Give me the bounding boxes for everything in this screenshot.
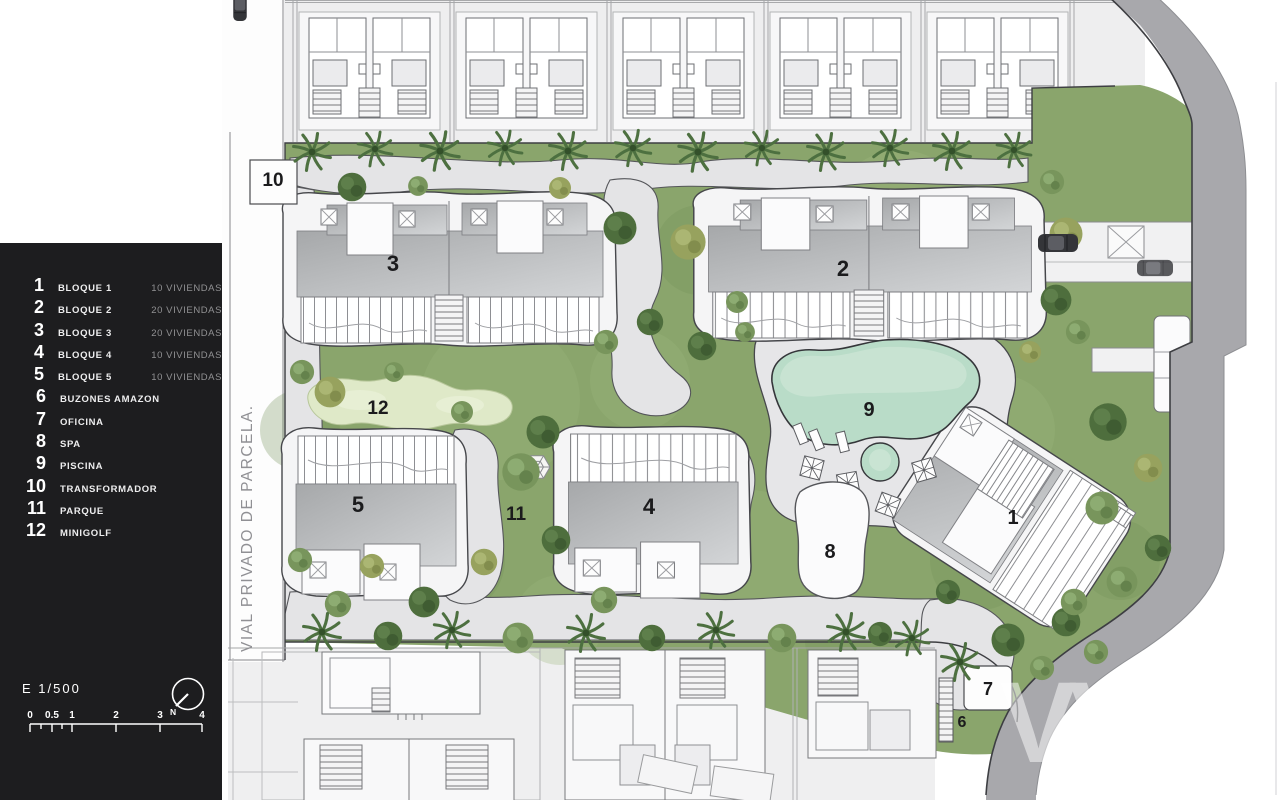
legend-item-spa: 8SPA [0,431,222,453]
plan-label-bloque-2: 2 [837,256,849,281]
legend-label: BLOQUE 5 [58,372,151,383]
plan-label-buzones: 6 [958,714,967,731]
road-label: VIAL PRIVADO DE PARCELA. [239,404,256,652]
legend-item-bloque-4: 4BLOQUE 410 VIVIENDAS [0,342,222,364]
plan-label-bloque-4: 4 [643,494,656,519]
scale-tick-label: 4 [199,710,205,721]
legend-item-minigolf: 12MINIGOLF [0,520,222,542]
legend-list: 1BLOQUE 110 VIVIENDAS 2BLOQUE 220 VIVIEN… [0,243,222,543]
plan-label-spa: 8 [824,541,835,563]
legend-item-bloque-1: 1BLOQUE 110 VIVIENDAS [0,275,222,297]
legend-number: 11 [12,498,46,519]
legend-number: 7 [12,409,46,430]
legend-label: MINIGOLF [60,528,159,539]
buzones-amazon [939,678,953,742]
parasol-icon [800,456,824,480]
legend-panel: 1BLOQUE 110 VIVIENDAS 2BLOQUE 220 VIVIEN… [0,243,222,800]
legend-item-bloque-5: 5BLOQUE 510 VIVIENDAS [0,364,222,386]
legend-detail: 10 VIVIENDAS [151,283,222,294]
scale-label: E 1/500 [22,681,81,696]
legend-number: 2 [12,297,44,318]
legend-number: 3 [12,320,44,341]
legend-item-transformador: 10TRANSFORMADOR [0,476,222,498]
legend-label: BLOQUE 3 [58,328,151,339]
plan-label-transformador: 10 [262,170,283,191]
scale-tick-label: 2 [113,710,119,721]
scale-bar: 0 0.5 1 2 3 4 [27,710,205,732]
legend-label: BUZONES AMAZON [60,394,159,405]
legend-detail: 20 VIVIENDAS [151,328,222,339]
building-bloque-2 [693,187,1046,341]
legend-number: 9 [12,453,46,474]
scale-tick-label: 1 [69,710,75,721]
car-icon [233,0,247,21]
plan-label-minigolf: 12 [367,398,388,419]
scale-tick-label: 3 [157,710,163,721]
legend-item-bloque-3: 3BLOQUE 320 VIVIENDAS [0,320,222,342]
scale-tick-label: 0 [27,710,33,721]
scale-tick-label: 0.5 [45,710,59,721]
legend-label: SPA [60,439,159,450]
legend-number: 10 [12,476,46,497]
legend-label: BLOQUE 2 [58,305,151,316]
legend-item-bloque-2: 2BLOQUE 220 VIVIENDAS [0,297,222,319]
legend-number: 8 [12,431,46,452]
legend-item-parque: 11PARQUE [0,498,222,520]
legend-item-piscina: 9PISCINA [0,453,222,475]
site-plan-page: 1 2 3 4 5 6 7 8 9 10 11 12 VIAL PRIVADO … [0,0,1280,800]
legend-label: PARQUE [60,506,159,517]
legend-number: 6 [12,386,46,407]
plan-label-bloque-3: 3 [387,251,399,276]
car-icon [1038,234,1078,252]
legend-detail: 20 VIVIENDAS [151,305,222,316]
building-bloque-3 [282,192,617,346]
legend-number: 12 [12,520,46,541]
legend-label: TRANSFORMADOR [60,484,159,495]
plan-label-piscina: 9 [863,399,874,421]
legend-item-oficina: 7OFICINA [0,409,222,431]
car-icon [1137,260,1173,276]
scale-and-north: E 1/500 N 0 0.5 1 2 3 4 [0,663,222,793]
plan-label-parque: 11 [506,504,527,525]
legend-number: 5 [12,364,44,385]
plan-label-bloque-1: 1 [1007,507,1018,529]
legend-label: PISCINA [60,461,159,472]
legend-label: BLOQUE 4 [58,350,151,361]
north-label: N [170,707,176,717]
legend-item-buzones: 6BUZONES AMAZON [0,386,222,408]
legend-number: 1 [12,275,44,296]
legend-number: 4 [12,342,44,363]
legend-label: BLOQUE 1 [58,283,151,294]
plan-label-oficina: 7 [983,679,993,699]
legend-detail: 10 VIVIENDAS [151,372,222,383]
legend-detail: 10 VIVIENDAS [151,350,222,361]
watermark: VV [1000,659,1145,787]
legend-label: OFICINA [60,417,159,428]
plan-label-bloque-5: 5 [352,492,364,517]
